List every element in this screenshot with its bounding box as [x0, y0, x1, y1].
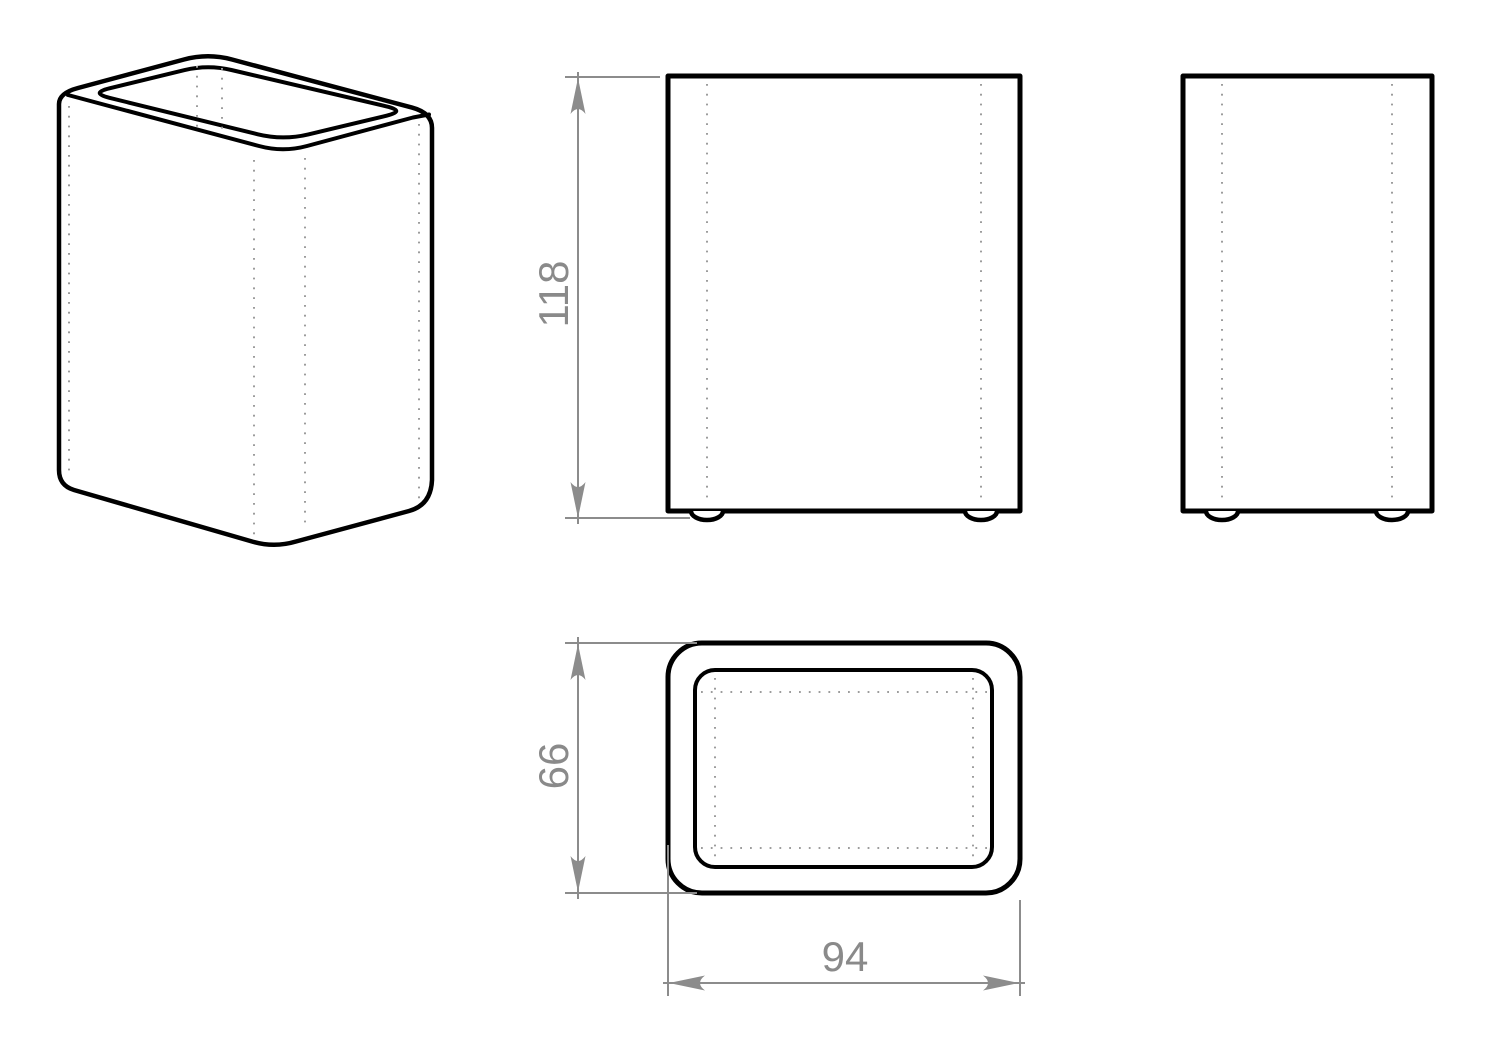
arrowhead-left [669, 976, 705, 991]
side-outline [1183, 76, 1432, 511]
arrowhead-right [983, 976, 1019, 991]
foot [965, 511, 997, 520]
top-outer-outline [668, 643, 1020, 893]
drawing-canvas: 118 66 94 [0, 0, 1500, 1054]
side-view [1183, 76, 1432, 520]
foot [1206, 511, 1238, 520]
technical-drawing: 118 66 94 [0, 0, 1500, 1054]
depth-dimension-label: 66 [530, 743, 577, 790]
top-view [668, 643, 1020, 893]
front-outline [668, 76, 1020, 511]
arrowhead-up [571, 644, 586, 680]
height-dimension-label: 118 [530, 261, 577, 328]
arrowhead-down [571, 482, 586, 518]
width-dimension-label: 94 [822, 933, 869, 980]
foot [1376, 511, 1408, 520]
arrowhead-up [571, 78, 586, 114]
isometric-view [59, 56, 432, 545]
arrowhead-down [571, 856, 586, 892]
front-view [668, 76, 1020, 520]
foot [691, 511, 723, 520]
